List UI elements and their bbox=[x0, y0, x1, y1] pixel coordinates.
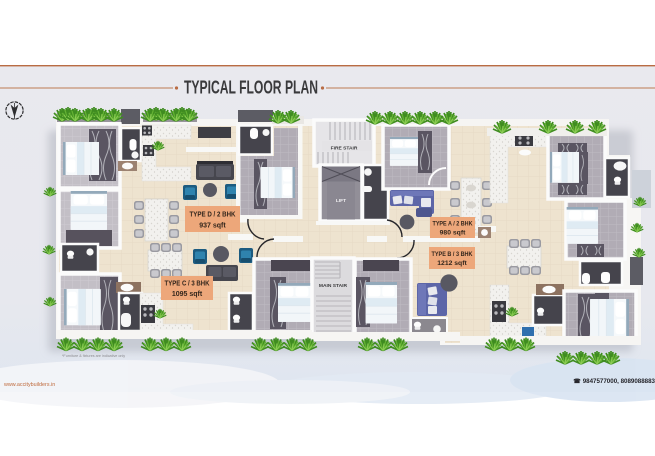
svg-text:FIRE STAIR: FIRE STAIR bbox=[331, 146, 358, 152]
svg-text:1095 sqft: 1095 sqft bbox=[172, 291, 203, 298]
svg-text:980 sqft: 980 sqft bbox=[440, 230, 466, 237]
svg-text:www.accitybuilders.in: www.accitybuilders.in bbox=[3, 382, 55, 388]
svg-text:TYPE A / 2 BHK: TYPE A / 2 BHK bbox=[433, 221, 473, 228]
svg-text:*Furniture & fixtures are indi: *Furniture & fixtures are indicative onl… bbox=[62, 354, 125, 358]
svg-text:1212 sqft: 1212 sqft bbox=[437, 260, 467, 267]
svg-text:LIFT: LIFT bbox=[336, 198, 346, 204]
svg-text:TYPE B / 3 BHK: TYPE B / 3 BHK bbox=[432, 251, 473, 258]
svg-text:937 sqft: 937 sqft bbox=[199, 223, 226, 230]
svg-text:TYPE C / 3 BHK: TYPE C / 3 BHK bbox=[165, 281, 210, 288]
svg-text:MAIN STAIR: MAIN STAIR bbox=[319, 283, 348, 289]
svg-text:TYPICAL FLOOR PLAN: TYPICAL FLOOR PLAN bbox=[184, 77, 318, 98]
svg-text:TYPE D / 2 BHK: TYPE D / 2 BHK bbox=[190, 212, 236, 219]
svg-text:☎ 9847577000, 8089088883: ☎ 9847577000, 8089088883 bbox=[573, 378, 655, 385]
